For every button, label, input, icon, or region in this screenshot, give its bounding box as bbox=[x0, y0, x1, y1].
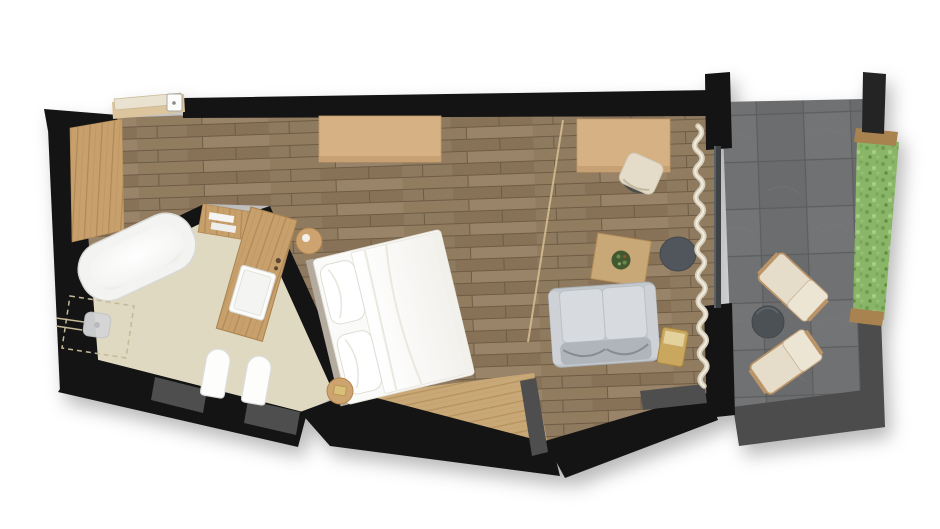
balcony-pillar-top-right bbox=[862, 72, 886, 134]
sofa-cushion bbox=[602, 285, 648, 340]
nightstand-foot bbox=[327, 378, 353, 404]
pouf bbox=[660, 237, 696, 271]
hedge-planter bbox=[853, 138, 899, 320]
coffee-table bbox=[591, 233, 652, 287]
floor-plan-group bbox=[44, 72, 899, 478]
floor-plan-svg bbox=[0, 0, 940, 529]
wall-pillar-bottom bbox=[704, 303, 735, 418]
floor-plan-canvas bbox=[0, 0, 940, 529]
shower-head-icon bbox=[82, 311, 111, 338]
wall-top bbox=[183, 90, 714, 118]
sideboard bbox=[319, 116, 441, 162]
glass-wall-highlight bbox=[714, 146, 716, 308]
sofa-cushion bbox=[559, 288, 606, 343]
door-knob-icon bbox=[172, 101, 176, 105]
wardrobe bbox=[70, 119, 124, 242]
balcony-railing-right bbox=[858, 316, 885, 430]
sofa bbox=[548, 282, 660, 368]
nightstand-head bbox=[296, 228, 322, 254]
wall-pillar-top bbox=[705, 72, 732, 150]
balcony-table bbox=[752, 306, 784, 338]
side-table bbox=[657, 327, 689, 367]
entry-door bbox=[112, 93, 185, 119]
